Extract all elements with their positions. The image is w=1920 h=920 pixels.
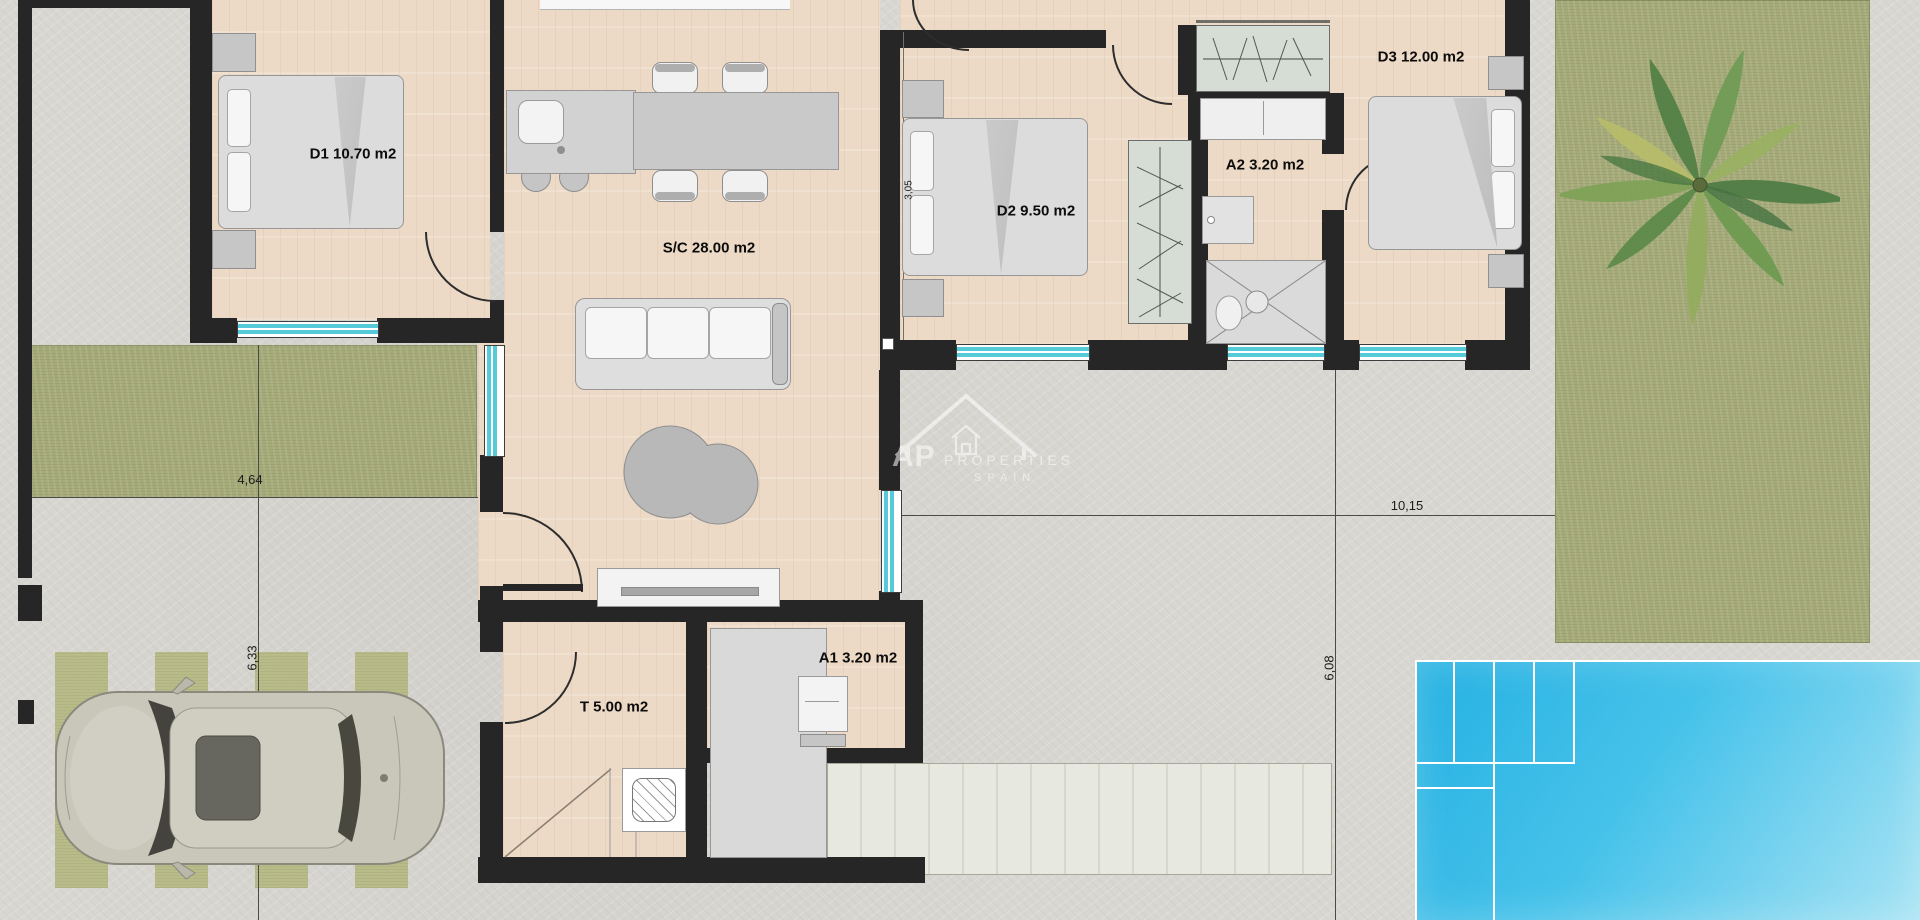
pillow (227, 152, 251, 212)
kitchen-top-counter (540, 0, 790, 10)
bed-d3 (1368, 96, 1522, 250)
palm-tree (1560, 40, 1840, 330)
wall-d2-top (880, 30, 1106, 48)
pool-step-line (1453, 660, 1455, 762)
shower-a2 (1206, 260, 1326, 344)
car-sunroof (196, 736, 260, 820)
watermark: AP PROPERTIES SPAIN (878, 388, 1108, 493)
toilet-a1 (800, 734, 846, 747)
pool-step-line (1533, 660, 1535, 762)
sofa-cushion (709, 307, 771, 359)
kitchen-faucet (557, 146, 565, 154)
pool-step-line (1493, 660, 1495, 762)
room-label-a2: A2 3.20 m2 (1226, 157, 1304, 174)
bed-d2 (902, 118, 1088, 276)
room-label-d2: D2 9.50 m2 (997, 203, 1075, 220)
wall-property-top (18, 0, 190, 8)
nightstand (212, 33, 256, 72)
pool-step-line (1573, 660, 1575, 762)
wall-entrance-mid (480, 455, 503, 512)
window-a2 (1227, 344, 1325, 361)
nightstand (1488, 56, 1524, 90)
nightstand (902, 80, 944, 118)
watermark-initials: AP (892, 440, 936, 474)
sideboard-detail (621, 587, 759, 596)
pillow (227, 89, 251, 147)
vanity-divider (1263, 101, 1264, 135)
nightstand (1488, 254, 1524, 288)
wardrobe-hangers (1129, 141, 1191, 323)
dimension-label-d2-wall: 3,05 (904, 180, 915, 199)
wall-junction-marker (882, 338, 894, 350)
room-label-sc: S/C 28.00 m2 (663, 240, 756, 257)
wall-property-mark (18, 585, 42, 621)
sofa-cushion (647, 307, 709, 359)
vanity-counter (1200, 98, 1326, 140)
washing-machine-drum (632, 778, 676, 822)
dimension-label-height-right: 6,08 (1322, 655, 1337, 680)
sideboard (597, 568, 780, 607)
window-d3 (1359, 344, 1467, 361)
wall-house-bottom (478, 857, 925, 883)
room-label-d3: D3 12.00 m2 (1378, 49, 1465, 66)
dimension-line-horizontal-right (895, 515, 1555, 516)
wall-d1-bottom-pier (190, 318, 237, 343)
dimension-label-width-left: 4,64 (237, 472, 262, 487)
watermark-country: SPAIN (974, 472, 1036, 484)
wall-d1-bottom-pier (377, 318, 504, 343)
wall-property-left (18, 0, 32, 578)
dimension-line-horizontal-left (31, 497, 503, 498)
wall-t-left-lower (480, 722, 503, 860)
window-d2 (956, 344, 1090, 361)
wall-d1-right-lower (490, 300, 504, 343)
dining-chair (652, 62, 698, 94)
washbasin-unit (1202, 196, 1254, 244)
dimension-label-height-left: 6,33 (245, 645, 260, 670)
dining-chair (652, 170, 698, 202)
wall-living-right-upper (880, 30, 900, 342)
nightstand (902, 279, 944, 317)
wall-living-right-low (879, 591, 900, 622)
washing-machine (622, 768, 686, 832)
car (52, 674, 448, 882)
wall-property-mark (18, 700, 34, 724)
basin-detail (805, 701, 839, 702)
kitchen-sink (518, 100, 564, 144)
blanket-fold (976, 120, 1026, 274)
door-leaf-entrance (503, 584, 583, 591)
kitchen-island (506, 90, 636, 174)
dimension-label-width-right: 10,15 (1391, 498, 1424, 513)
hall-closet (1196, 25, 1330, 92)
wall-t-left-upper (480, 615, 503, 652)
pillow (1491, 109, 1515, 167)
wardrobe-d2 (1128, 140, 1192, 324)
dimension-line-vertical-right (1335, 370, 1336, 920)
room-label-d1: D1 10.70 m2 (310, 146, 397, 163)
rug (612, 424, 772, 529)
window-entry (484, 345, 505, 457)
wall-d1-left (190, 0, 212, 343)
room-label-t: T 5.00 m2 (580, 699, 648, 716)
basin-knob (1207, 216, 1215, 224)
closet-hangers (1197, 26, 1329, 91)
nightstand (212, 230, 256, 269)
window-living-east (881, 490, 902, 593)
floor-plan-canvas: D1 10.70 m2 S/C 28.00 m2 D2 9.50 m2 A2 3… (0, 0, 1920, 920)
dining-chair (722, 62, 768, 94)
sofa-cushion (585, 307, 647, 359)
pillow (910, 195, 934, 255)
wall-hall-divider (1178, 25, 1196, 95)
pool-step-line (1415, 762, 1575, 764)
pool-step-line (1493, 762, 1495, 920)
wall-a1-right (905, 600, 923, 763)
dining-chair (722, 170, 768, 202)
wall-t-a1-divider (686, 620, 707, 883)
pool-step-line (1415, 787, 1493, 789)
closet-top-line (1196, 20, 1330, 23)
washbasin-a1 (798, 676, 848, 732)
wall-d1-right-upper (490, 0, 504, 232)
sofa-armrest (772, 303, 788, 385)
dining-table (633, 92, 839, 170)
watermark-name: PROPERTIES (944, 452, 1074, 468)
pool (1415, 660, 1920, 920)
window-d1 (237, 321, 379, 338)
room-label-a1: A1 3.20 m2 (819, 650, 897, 667)
sofa (575, 298, 791, 390)
toilet (1216, 296, 1242, 330)
